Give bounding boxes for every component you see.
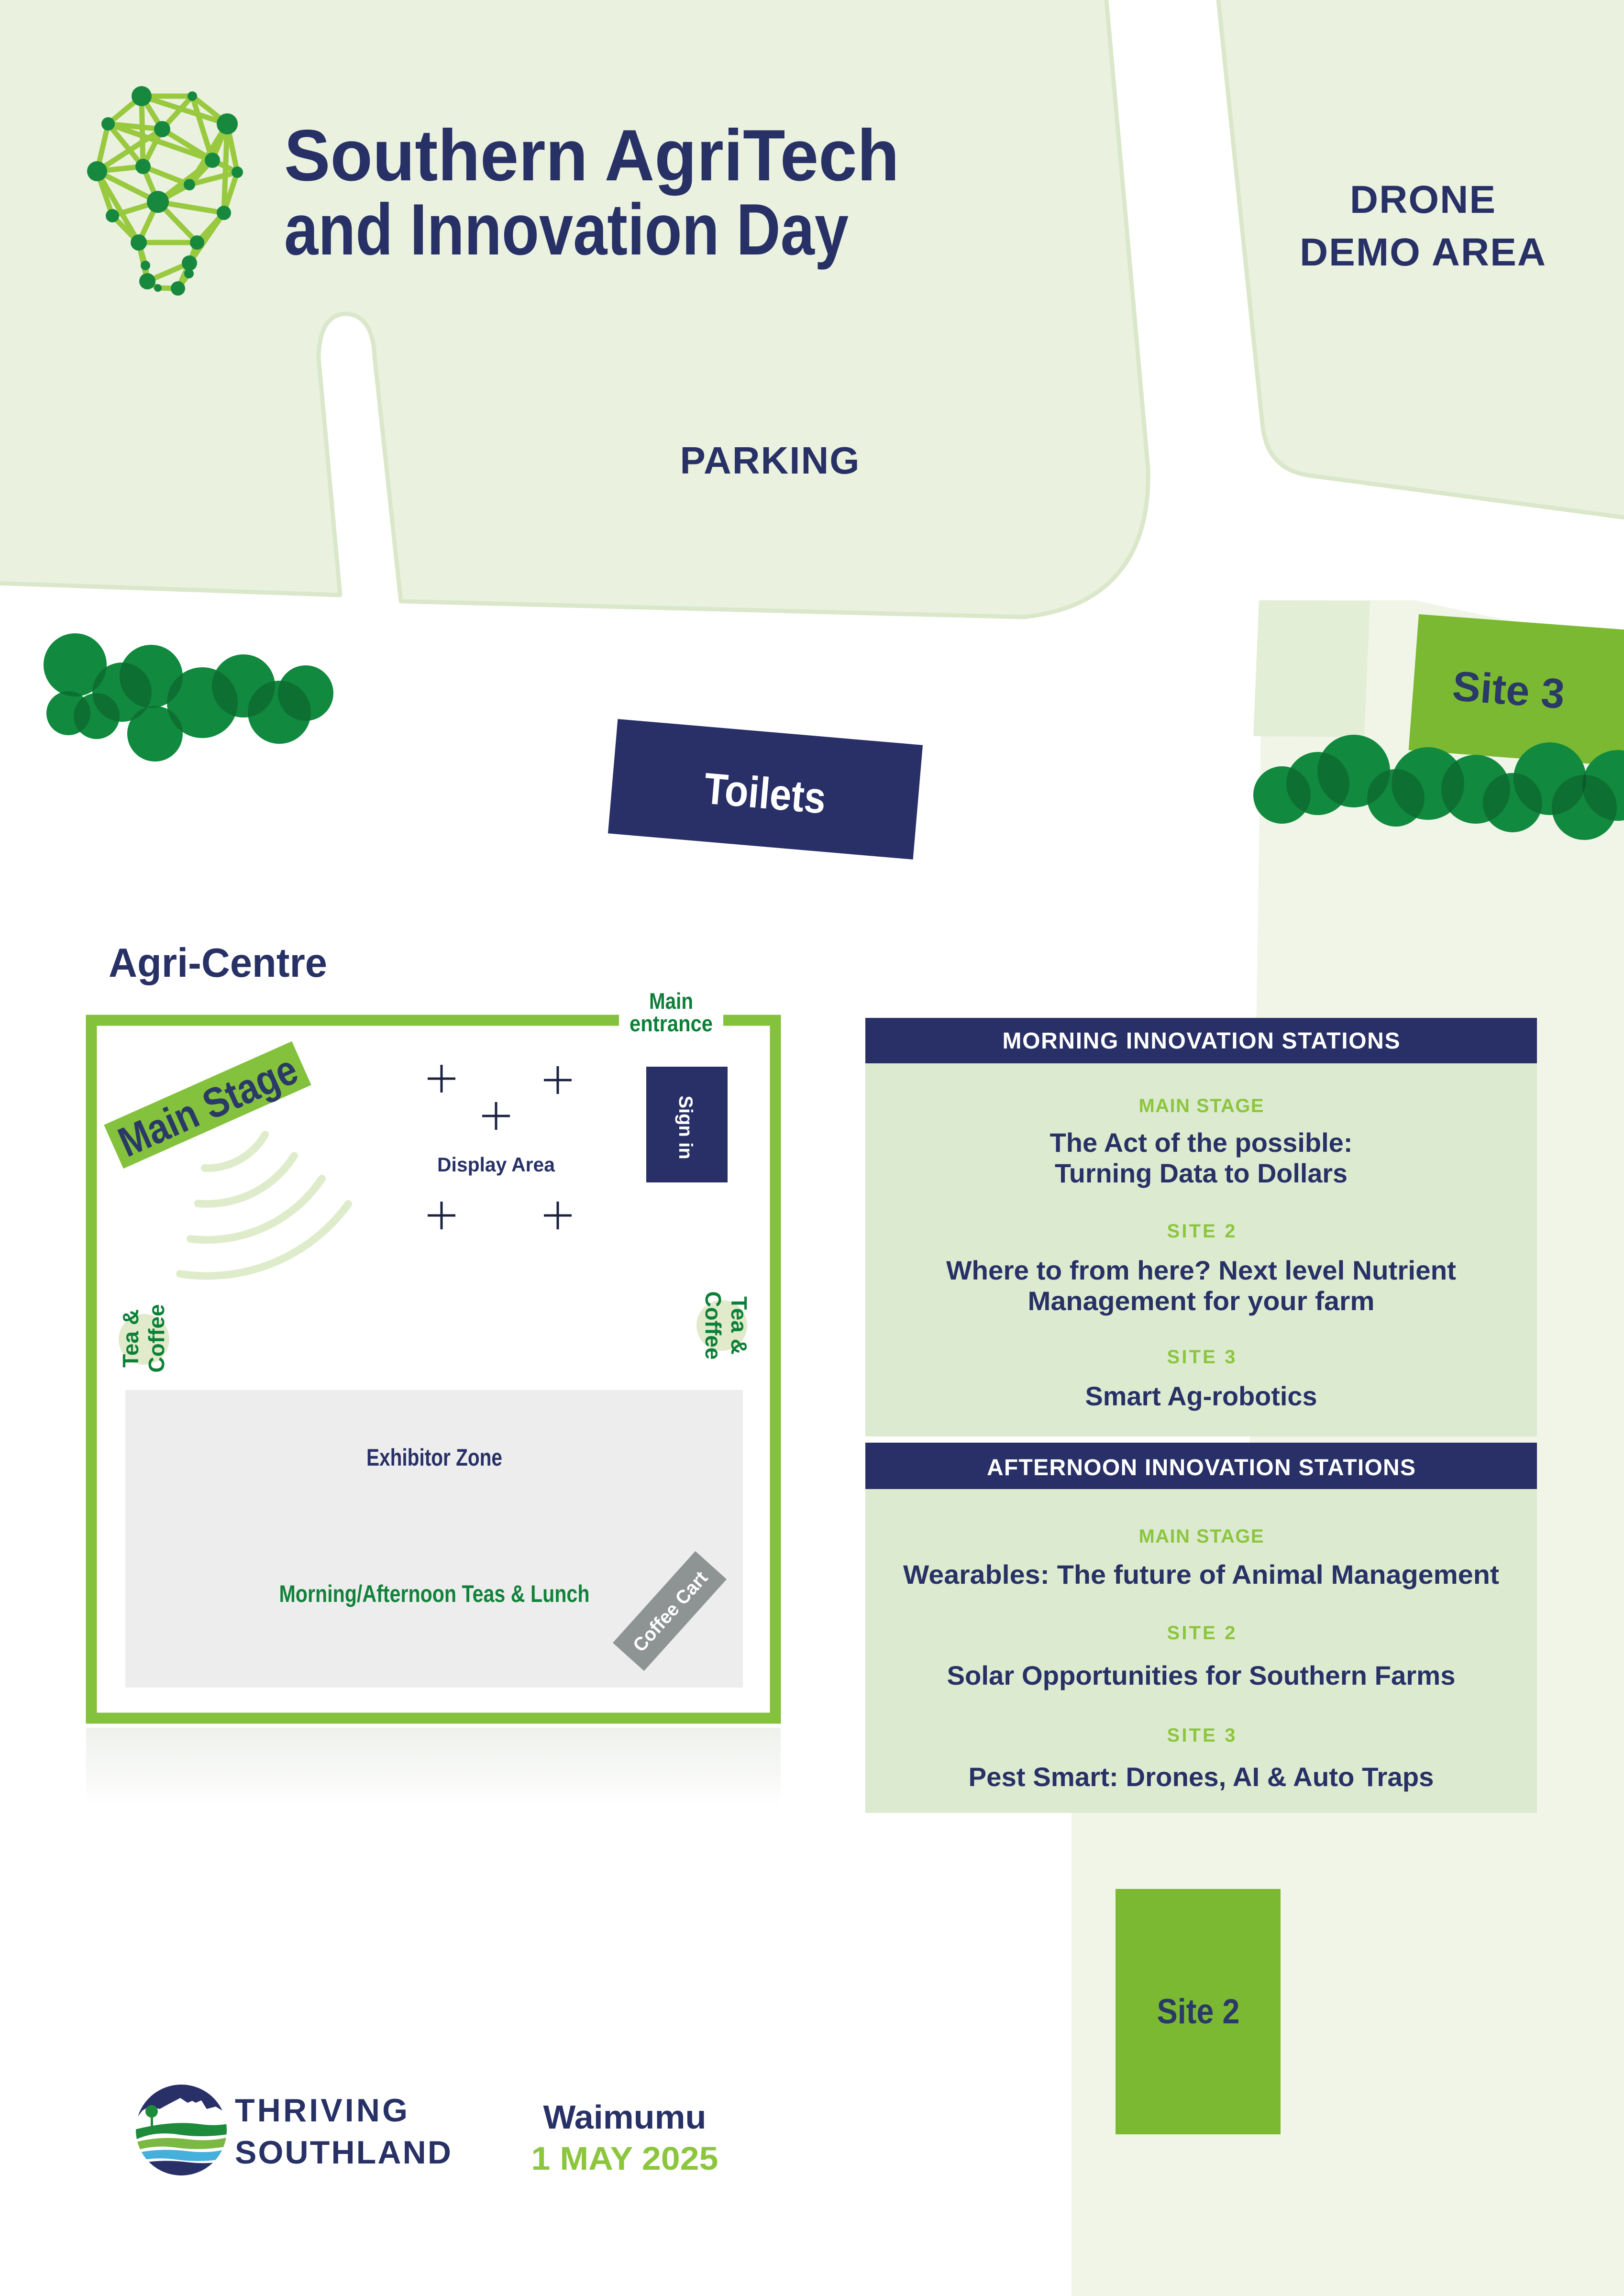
svg-text:AFTERNOON INNOVATION STATIONS: AFTERNOON INNOVATION STATIONS xyxy=(987,1455,1415,1480)
svg-text:Main: Main xyxy=(649,988,693,1014)
svg-text:Agri-Centre: Agri-Centre xyxy=(109,940,327,986)
svg-text:and Innovation Day: and Innovation Day xyxy=(284,189,849,270)
svg-text:Where to from here? Next level: Where to from here? Next level Nutrient xyxy=(946,1255,1456,1285)
svg-text:Morning/Afternoon Teas & Lunch: Morning/Afternoon Teas & Lunch xyxy=(279,1580,590,1607)
svg-text:Coffee: Coffee xyxy=(701,1291,726,1359)
svg-text:Coffee: Coffee xyxy=(144,1304,169,1372)
svg-text:DEMO AREA: DEMO AREA xyxy=(1300,231,1547,274)
svg-text:PARKING: PARKING xyxy=(680,439,861,482)
svg-text:Toilets: Toilets xyxy=(702,764,828,823)
svg-text:MAIN STAGE: MAIN STAGE xyxy=(1139,1095,1264,1116)
svg-text:Wearables: The future of Anima: Wearables: The future of Animal Manageme… xyxy=(903,1559,1499,1590)
svg-text:Management for your farm: Management for your farm xyxy=(1028,1286,1375,1316)
svg-text:Turning Data to Dollars: Turning Data to Dollars xyxy=(1055,1158,1348,1188)
svg-text:Smart Ag-robotics: Smart Ag-robotics xyxy=(1085,1381,1317,1411)
svg-text:Waimumu: Waimumu xyxy=(543,2098,707,2136)
svg-text:SOUTHLAND: SOUTHLAND xyxy=(235,2134,451,2171)
svg-text:Site 3: Site 3 xyxy=(1451,662,1567,717)
svg-text:Southern AgriTech: Southern AgriTech xyxy=(284,115,899,196)
svg-text:Sign in: Sign in xyxy=(675,1095,696,1159)
svg-text:Exhibitor Zone: Exhibitor Zone xyxy=(366,1444,502,1471)
svg-text:Site 2: Site 2 xyxy=(1157,1992,1240,2031)
svg-text:Tea &: Tea & xyxy=(727,1296,751,1355)
svg-text:1 MAY 2025: 1 MAY 2025 xyxy=(531,2140,718,2177)
svg-text:Pest Smart: Drones, AI & Auto: Pest Smart: Drones, AI & Auto Traps xyxy=(969,1762,1434,1792)
svg-text:Tea &: Tea & xyxy=(118,1309,143,1368)
svg-text:entrance: entrance xyxy=(630,1011,713,1036)
svg-text:The Act of the possible:: The Act of the possible: xyxy=(1050,1127,1353,1158)
svg-text:Display Area: Display Area xyxy=(437,1153,555,1176)
svg-text:MAIN STAGE: MAIN STAGE xyxy=(1139,1526,1264,1547)
svg-text:Solar Opportunities for Southe: Solar Opportunities for Southern Farms xyxy=(947,1660,1456,1690)
svg-text:DRONE: DRONE xyxy=(1350,178,1496,221)
svg-text:MORNING INNOVATION STATIONS: MORNING INNOVATION STATIONS xyxy=(1003,1028,1400,1054)
